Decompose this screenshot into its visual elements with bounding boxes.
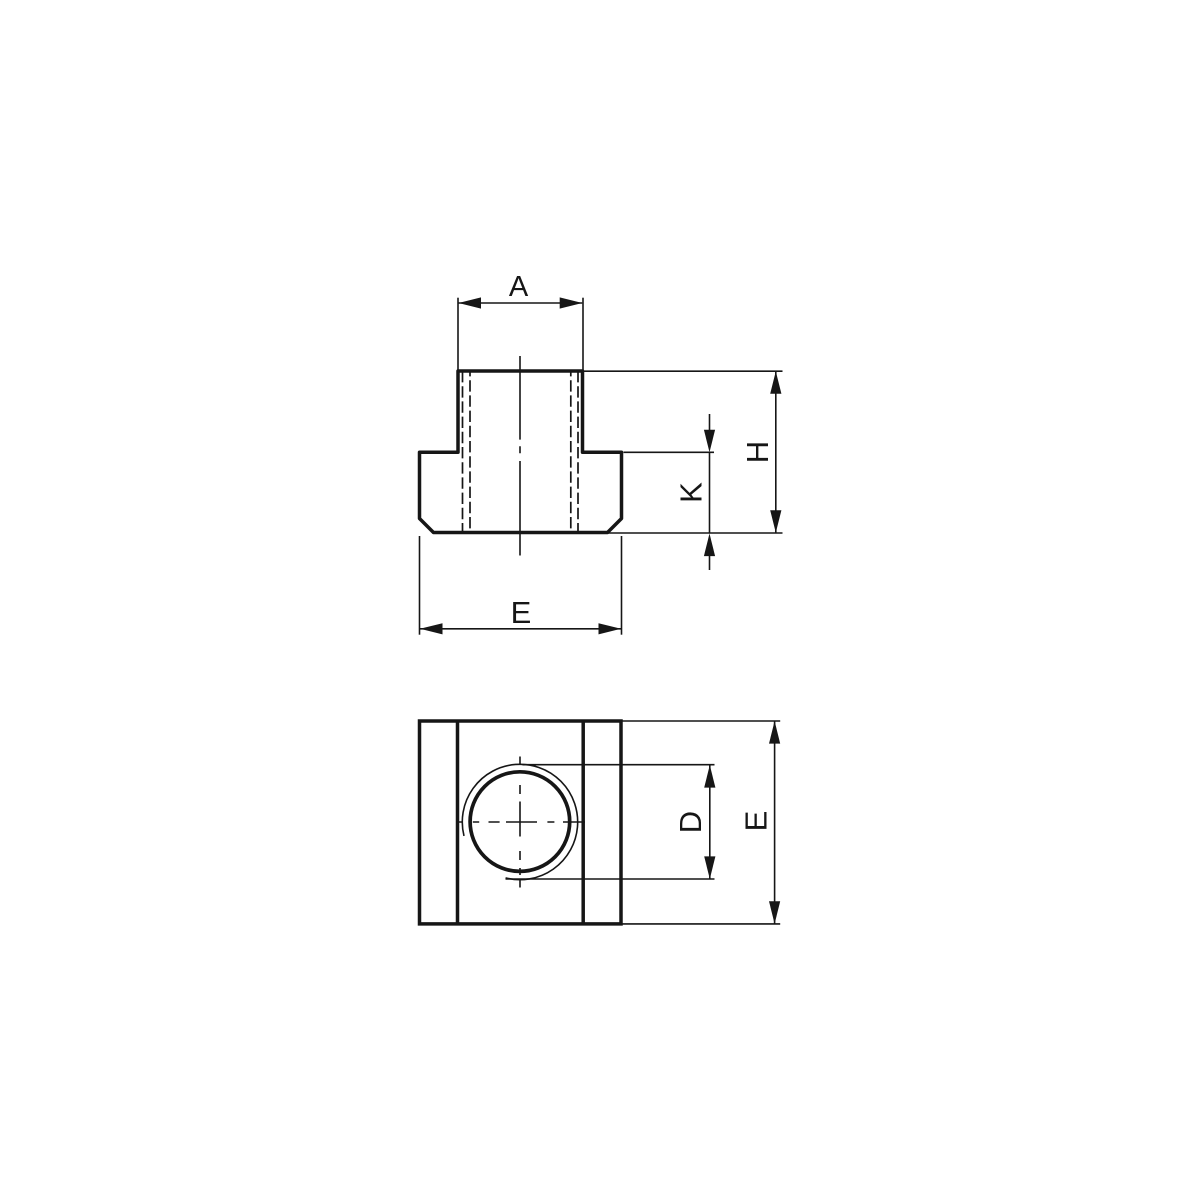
svg-text:E: E (511, 595, 532, 630)
svg-text:E: E (739, 811, 774, 832)
svg-text:K: K (674, 482, 709, 503)
svg-text:D: D (673, 811, 708, 833)
svg-text:A: A (509, 271, 529, 303)
svg-text:H: H (740, 441, 775, 463)
